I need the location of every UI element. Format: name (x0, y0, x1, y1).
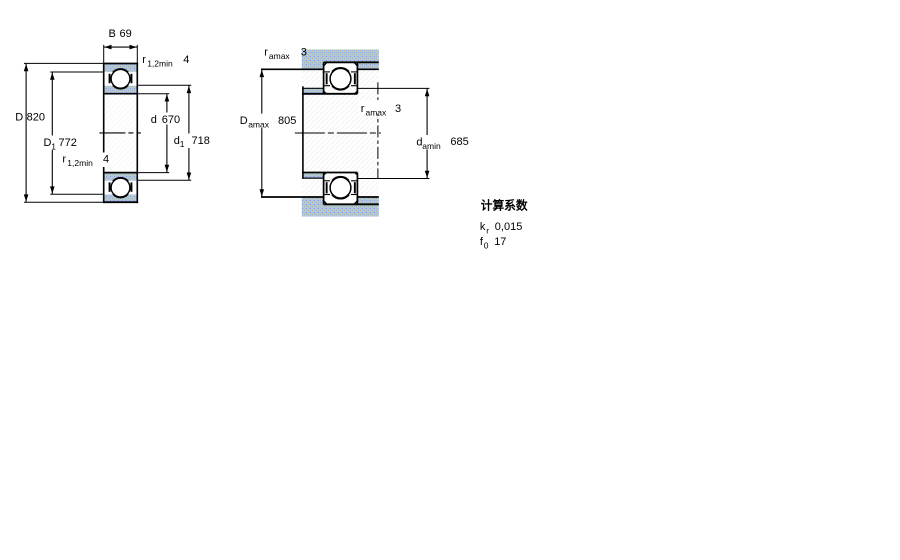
svg-text:718: 718 (192, 135, 210, 147)
svg-text:r: r (62, 154, 66, 166)
svg-text:3: 3 (301, 47, 307, 59)
svg-text:670: 670 (162, 114, 180, 126)
svg-text:3: 3 (395, 103, 401, 115)
svg-text:1: 1 (51, 141, 56, 151)
svg-text:r: r (264, 46, 268, 58)
svg-text:1,2min: 1,2min (67, 158, 93, 168)
svg-text:1: 1 (180, 139, 185, 149)
svg-text:d: d (151, 114, 157, 126)
svg-text:D: D (15, 112, 23, 124)
svg-text:amax: amax (248, 119, 270, 129)
svg-text:820: 820 (27, 112, 45, 124)
svg-text:r: r (486, 225, 489, 235)
svg-text:4: 4 (103, 154, 109, 166)
svg-text:计算系数: 计算系数 (481, 199, 528, 213)
svg-text:amax: amax (269, 51, 291, 61)
svg-text:685: 685 (450, 136, 468, 148)
svg-text:4: 4 (183, 54, 189, 66)
svg-text:772: 772 (59, 137, 77, 149)
svg-text:D: D (240, 115, 248, 127)
svg-text:r: r (142, 54, 146, 66)
svg-text:0: 0 (484, 240, 489, 250)
svg-text:B: B (109, 28, 116, 40)
svg-text:69: 69 (120, 28, 132, 40)
svg-text:1,2min: 1,2min (147, 58, 173, 68)
svg-text:17: 17 (494, 236, 506, 248)
svg-text:805: 805 (278, 115, 296, 127)
svg-text:k: k (480, 221, 486, 233)
svg-text:r: r (361, 103, 365, 115)
svg-text:amax: amax (366, 108, 388, 118)
svg-text:0,015: 0,015 (495, 221, 523, 233)
svg-text:amin: amin (422, 141, 441, 151)
